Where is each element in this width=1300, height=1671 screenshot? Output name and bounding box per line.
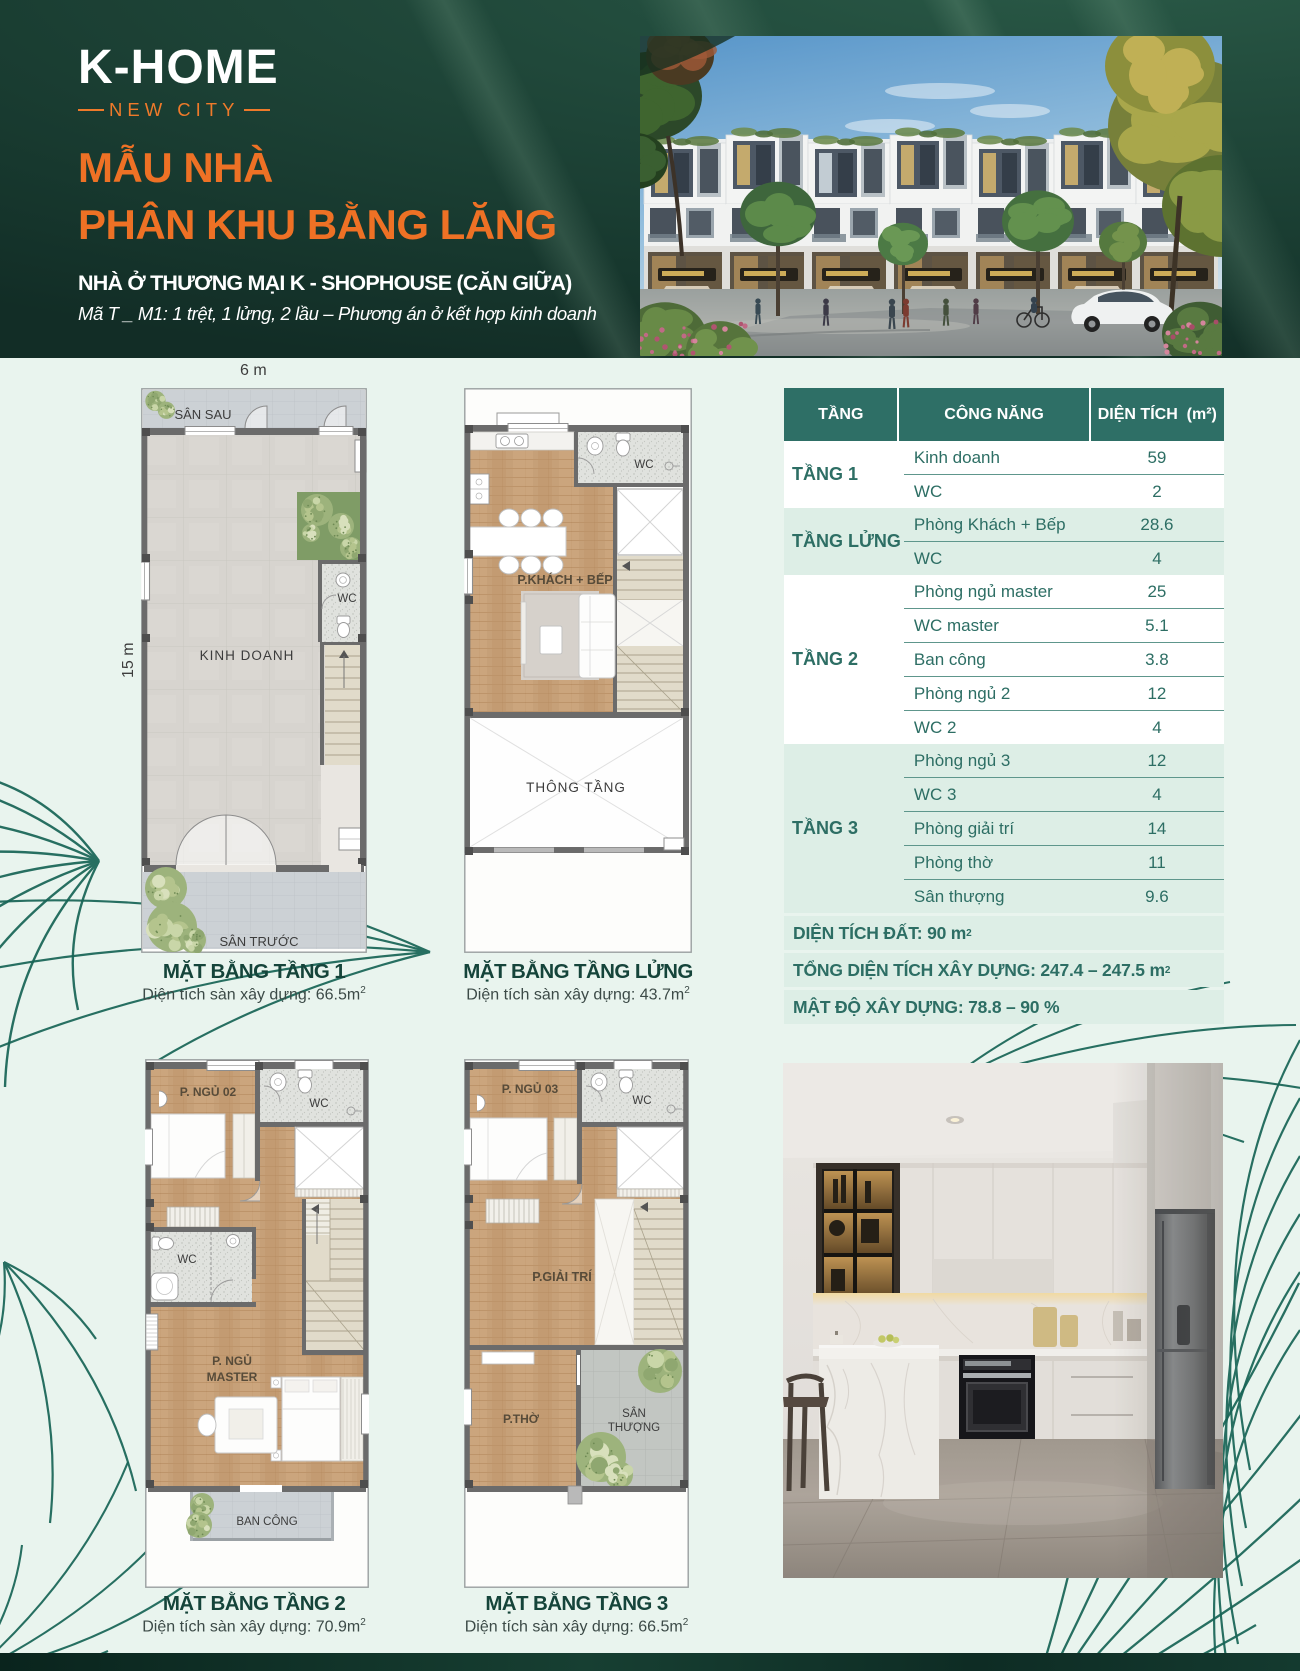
- svg-text:MASTER: MASTER: [207, 1370, 258, 1384]
- svg-text:WC: WC: [632, 1095, 651, 1107]
- svg-text:P.GIẢI TRÍ: P.GIẢI TRÍ: [532, 1269, 592, 1284]
- svg-text:WC: WC: [309, 1098, 328, 1110]
- svg-text:BAN CÔNG: BAN CÔNG: [236, 1515, 297, 1528]
- svg-text:SÂN TRƯỚC: SÂN TRƯỚC: [219, 934, 298, 949]
- svg-text:WC: WC: [177, 1254, 196, 1266]
- svg-text:KINH DOANH: KINH DOANH: [200, 648, 295, 663]
- svg-text:P.KHÁCH + BẾP: P.KHÁCH + BẾP: [517, 572, 612, 587]
- svg-text:SÂN SAU: SÂN SAU: [174, 407, 231, 422]
- svg-text:P. NGỦ: P. NGỦ: [212, 1353, 252, 1368]
- svg-text:P. NGỦ 02: P. NGỦ 02: [180, 1084, 237, 1099]
- svg-text:P.THỜ: P.THỜ: [503, 1411, 540, 1426]
- svg-text:THƯỢNG: THƯỢNG: [608, 1422, 660, 1434]
- svg-text:SÂN: SÂN: [622, 1407, 646, 1420]
- svg-text:WC: WC: [337, 593, 356, 605]
- svg-text:THÔNG TẦNG: THÔNG TẦNG: [526, 780, 626, 795]
- svg-text:WC: WC: [634, 459, 653, 471]
- svg-text:P. NGỦ 03: P. NGỦ 03: [502, 1081, 559, 1096]
